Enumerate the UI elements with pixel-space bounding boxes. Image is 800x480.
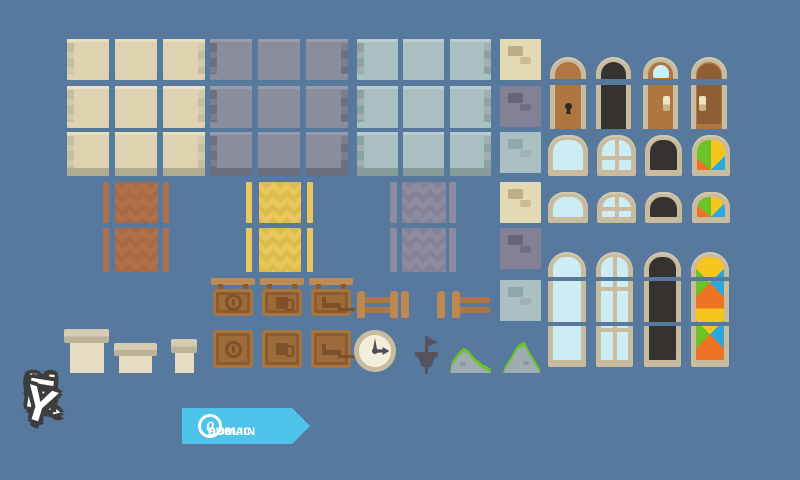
wall-tile-cream — [163, 86, 205, 128]
tile-edge-notches — [198, 136, 205, 170]
tile-top-highlight — [450, 86, 491, 89]
wall-tile-slate — [210, 86, 252, 128]
window-glass — [697, 197, 725, 217]
stone-block-beige — [500, 182, 541, 223]
chimney-cap — [171, 339, 197, 353]
window-glass — [553, 140, 583, 170]
tile-base — [357, 168, 398, 176]
fence-post — [437, 291, 445, 318]
tall-window-plain — [548, 252, 586, 367]
tile-base — [258, 168, 300, 176]
window-glass — [553, 197, 583, 217]
wall-tile-pale — [403, 39, 444, 80]
window-short-mullion — [597, 192, 636, 223]
curtain-strip-gray — [449, 228, 456, 272]
door-handle — [663, 96, 670, 111]
door-leaf — [601, 62, 626, 129]
tile-edge-notches — [484, 136, 491, 170]
tile-top-highlight — [115, 39, 157, 42]
tile-top-highlight — [67, 39, 109, 42]
bed-icon — [322, 297, 341, 308]
wall-tile-cream — [115, 132, 157, 176]
tile-edge-notches — [341, 43, 348, 74]
window-plain — [548, 135, 588, 176]
awning-green-orange — [115, 280, 155, 314]
fence-post — [357, 291, 365, 318]
keyhole-icon — [565, 103, 572, 110]
curtain-strip-yellow — [246, 228, 252, 272]
mug-icon — [276, 343, 288, 355]
sign-block-coin — [213, 330, 253, 368]
sign-mug — [262, 289, 302, 316]
tile-edge-notches — [210, 136, 217, 170]
vane-flag-icon — [427, 337, 438, 347]
wall-tile-slate — [306, 39, 348, 80]
awning-orange-white — [164, 280, 204, 314]
tile-base — [306, 168, 348, 176]
tile-edge-notches — [341, 90, 348, 122]
chimney-large — [70, 343, 104, 373]
wall-tile-slate — [258, 39, 300, 80]
rock-tall — [503, 339, 540, 373]
tile-top-highlight — [258, 86, 300, 89]
tile-edge-notches — [67, 43, 74, 74]
window-stained — [692, 135, 730, 176]
chimney-cap — [64, 329, 109, 343]
tile-edge-notches — [67, 136, 74, 170]
window-short-stained — [692, 192, 730, 223]
tile-top-highlight — [210, 39, 252, 42]
stone-block-gray — [500, 228, 541, 269]
tile-base — [210, 168, 252, 176]
tile-top-highlight — [67, 132, 109, 135]
tile-top-highlight — [67, 86, 109, 89]
coin-icon — [225, 294, 242, 311]
wall-tile-pale — [403, 132, 444, 176]
fence-post — [452, 291, 460, 318]
awning-green-white — [66, 280, 106, 314]
sign-block-mug — [262, 330, 302, 368]
window-glass — [649, 257, 676, 360]
door-leaf — [555, 62, 581, 129]
vane-crossbar — [415, 352, 438, 357]
window-glass — [602, 197, 631, 217]
tile-top-highlight — [403, 132, 444, 135]
window-glass — [696, 257, 724, 360]
weather-vane — [415, 336, 439, 374]
tile-edge-notches — [357, 43, 364, 74]
tile-top-highlight — [210, 86, 252, 89]
tile-top-highlight — [163, 86, 205, 89]
curtain-panel-yellow — [259, 228, 301, 272]
curtain-strip-gray — [449, 182, 456, 223]
sign-bar — [211, 278, 255, 285]
chimney-medium — [119, 356, 152, 373]
window-glass — [602, 140, 631, 170]
tile-top-highlight — [357, 86, 398, 89]
vane-cup — [418, 357, 435, 367]
wall-tile-cream — [115, 86, 157, 128]
door-wood-panel — [691, 57, 727, 129]
tile-edge-notches — [341, 136, 348, 170]
rock-wide — [450, 344, 491, 373]
wall-tile-slate — [258, 132, 300, 176]
wall-tile-cream — [115, 39, 157, 80]
sign-coin — [213, 289, 253, 316]
window-mullion — [597, 135, 636, 176]
curtain-panel-brown — [115, 228, 158, 272]
door-wood-keyhole — [550, 57, 586, 129]
mug-icon — [276, 297, 288, 309]
curtain-strip-brown — [103, 182, 109, 223]
curtain-strip-gray — [390, 182, 397, 223]
tile-edge-notches — [67, 90, 74, 122]
wall-tile-cream — [163, 39, 205, 80]
curtain-panel-brown — [115, 182, 158, 223]
curtain-strip-yellow — [307, 182, 313, 223]
curtain-strip-yellow — [246, 182, 252, 223]
door-handle — [699, 96, 706, 111]
tile-base — [115, 168, 157, 176]
tile-edge-notches — [210, 90, 217, 122]
curtain-strip-yellow — [307, 228, 313, 272]
sign-block-bed — [311, 330, 351, 368]
tile-top-highlight — [115, 86, 157, 89]
tile-base — [450, 168, 491, 176]
clock-hub — [372, 348, 378, 354]
wall-tile-pale — [450, 39, 491, 80]
curtain-strip-gray — [390, 228, 397, 272]
rock-spot — [460, 362, 466, 366]
window-short-plain — [548, 192, 588, 223]
wall-tile-slate — [210, 39, 252, 80]
badge-line2: DOMAIN — [208, 426, 256, 439]
tall-window-dark — [644, 252, 681, 367]
sign-bar — [260, 278, 304, 285]
spritesheet-canvas: 0 PUBLIC DOMAIN K E N N E Y — [0, 0, 800, 480]
tile-top-highlight — [357, 39, 398, 42]
tile-edge-notches — [357, 136, 364, 170]
tile-edge-notches — [210, 43, 217, 74]
wall-tile-cream — [67, 39, 109, 80]
tile-edge-notches — [198, 90, 205, 122]
tile-top-highlight — [450, 39, 491, 42]
tile-top-highlight — [306, 39, 348, 42]
tile-edge-notches — [198, 43, 205, 74]
wall-tile-pale — [450, 132, 491, 176]
window-glass — [601, 257, 628, 360]
tile-top-highlight — [258, 132, 300, 135]
wall-tile-pale — [357, 39, 398, 80]
wall-tile-slate — [306, 86, 348, 128]
tile-gap — [543, 322, 738, 326]
fence-post — [401, 291, 409, 318]
vane-leg — [425, 367, 428, 374]
tile-gap — [543, 277, 738, 281]
curtain-panel-gray — [402, 182, 446, 223]
tile-edge-notches — [484, 90, 491, 122]
clock — [354, 330, 396, 372]
wall-tile-slate — [210, 132, 252, 176]
rock-body — [503, 343, 540, 373]
window-dark — [645, 135, 682, 176]
wall-tile-pale — [450, 86, 491, 128]
tile-edge-notches — [484, 43, 491, 74]
rock-spot — [523, 361, 529, 365]
tile-top-highlight — [163, 39, 205, 42]
window-glass — [553, 257, 581, 360]
tile-top-highlight — [450, 132, 491, 135]
window-glass — [697, 140, 725, 170]
curtain-strip-brown — [103, 228, 109, 272]
tile-top-highlight — [403, 39, 444, 42]
tile-top-highlight — [258, 39, 300, 42]
window-glass — [650, 197, 677, 217]
tile-top-highlight — [210, 132, 252, 135]
tile-base — [67, 168, 109, 176]
window-glass — [650, 140, 677, 170]
wall-tile-pale — [357, 86, 398, 128]
tile-top-highlight — [403, 86, 444, 89]
stone-block-pale — [500, 280, 541, 321]
wall-tile-slate — [306, 132, 348, 176]
door-dark — [596, 57, 631, 129]
curtain-strip-brown — [163, 182, 169, 223]
window-short-dark — [645, 192, 682, 223]
tile-top-highlight — [306, 86, 348, 89]
curtain-panel-gray — [402, 228, 446, 272]
sign-bed — [311, 289, 351, 316]
tall-window-mullion — [596, 252, 633, 367]
door-inset-panel — [697, 64, 721, 124]
stone-block-pale — [500, 132, 541, 173]
wall-tile-cream — [67, 132, 109, 176]
chimney-cap — [114, 343, 157, 356]
curtain-strip-brown — [163, 228, 169, 272]
tile-top-highlight — [357, 132, 398, 135]
bed-icon — [322, 344, 341, 355]
coin-icon — [225, 341, 242, 358]
wall-tile-cream — [67, 86, 109, 128]
stone-block-beige — [500, 39, 541, 80]
door-wood-window — [643, 57, 678, 129]
wall-tile-pale — [403, 86, 444, 128]
public-domain-ribbon: 0 PUBLIC DOMAIN — [182, 408, 310, 444]
tile-top-highlight — [115, 132, 157, 135]
tile-edge-notches — [357, 90, 364, 122]
door-window-glass — [653, 65, 669, 78]
tile-top-highlight — [163, 132, 205, 135]
stone-block-gray — [500, 86, 541, 127]
chimney-small — [175, 353, 194, 373]
tile-gap — [543, 79, 738, 85]
tile-base — [163, 168, 205, 176]
wall-tile-cream — [163, 132, 205, 176]
tile-base — [403, 168, 444, 176]
wall-tile-pale — [357, 132, 398, 176]
tall-window-stained — [691, 252, 729, 367]
tile-top-highlight — [306, 132, 348, 135]
curtain-panel-yellow — [259, 182, 301, 223]
fence-post — [390, 291, 398, 318]
wall-tile-slate — [258, 86, 300, 128]
sign-bar — [309, 278, 353, 285]
